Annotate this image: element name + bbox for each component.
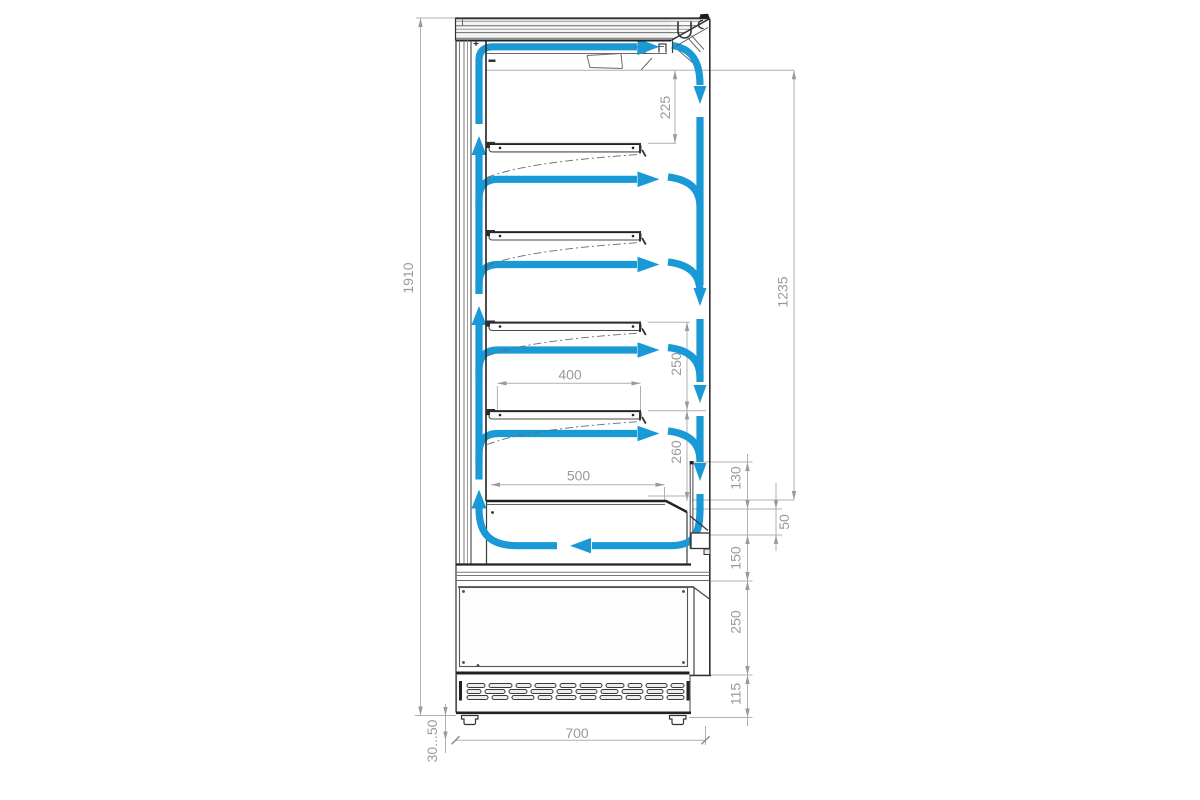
svg-text:150: 150 <box>728 546 744 570</box>
svg-text:250: 250 <box>668 352 684 376</box>
svg-text:115: 115 <box>728 683 744 706</box>
svg-text:1910: 1910 <box>400 262 416 293</box>
svg-text:400: 400 <box>558 367 582 383</box>
svg-text:225: 225 <box>657 96 673 120</box>
svg-text:500: 500 <box>567 468 591 484</box>
svg-text:250: 250 <box>728 610 744 634</box>
svg-text:130: 130 <box>728 466 744 490</box>
svg-text:30...50: 30...50 <box>424 719 440 762</box>
svg-text:1235: 1235 <box>775 276 791 307</box>
svg-text:700: 700 <box>565 725 589 741</box>
svg-text:260: 260 <box>668 440 684 464</box>
svg-text:50: 50 <box>776 514 792 530</box>
